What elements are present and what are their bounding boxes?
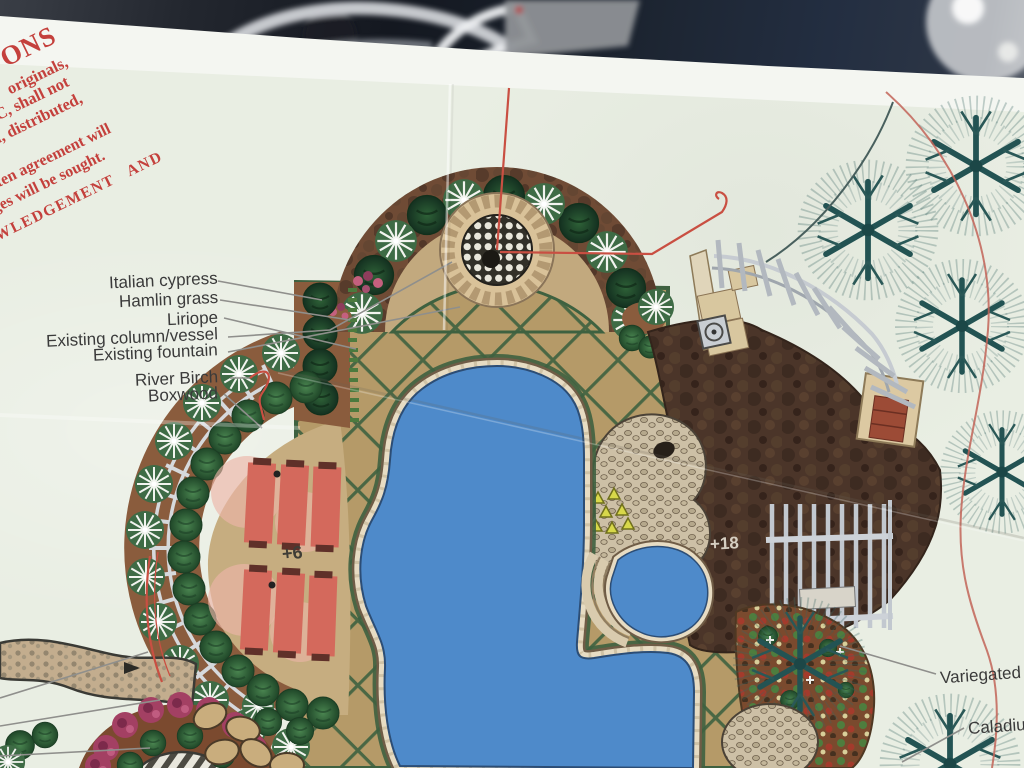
elevation-mark-plus18: +18 (710, 534, 740, 552)
photo-of-landscape-plan: ONS originals, C, shall not d, distribut… (0, 0, 1024, 768)
dome-garden (320, 167, 674, 358)
variegated-ginger-bed (722, 604, 874, 768)
elevation-mark-plus6: +6 (281, 543, 303, 563)
grill-icon (697, 315, 730, 348)
plan-paper-sheet: ONS originals, C, shall not d, distribut… (0, 0, 1024, 768)
label-caladium: Caladiu (967, 716, 1024, 737)
label-hamlin-grass: Hamlin grass (118, 289, 218, 310)
label-boxwood: Boxwood (148, 384, 219, 404)
spa (610, 547, 707, 637)
